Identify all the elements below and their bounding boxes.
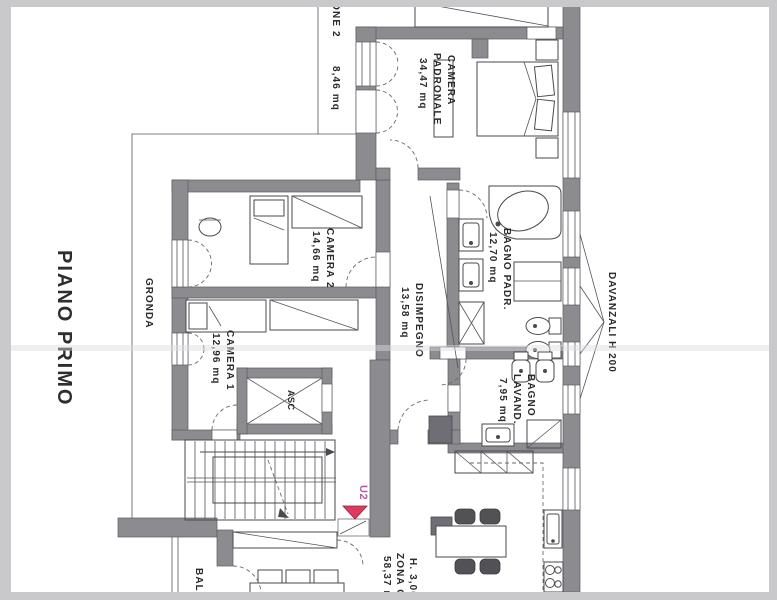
window-bedroom-east [563, 112, 580, 178]
stove [544, 562, 563, 592]
bidet [536, 352, 554, 382]
scan-edge-left [0, 0, 11, 600]
room-label-bagno-padronale: BAGNO PADR. [501, 228, 512, 310]
double-bed [477, 62, 558, 136]
chair [455, 509, 475, 524]
door-gap-camera1 [212, 430, 237, 440]
room-label-camera1: CAMERA 1 [224, 330, 235, 391]
pillow [534, 99, 554, 131]
scan-edge-top [0, 0, 777, 7]
window-kitchen-east [563, 468, 580, 510]
room-label-camera-padronale-1: CAMERA [445, 55, 456, 106]
room-area-bagno-padronale: 12,70 mq [487, 232, 498, 284]
nightstand [536, 138, 558, 158]
pillow [534, 65, 554, 97]
unit-marker-label: U2 [357, 485, 369, 500]
pillow [189, 303, 207, 329]
wall-camera-divider [172, 287, 378, 298]
single-bed [186, 300, 266, 332]
nightstand [536, 40, 558, 60]
room-label-lavanderia-1: BAGNO [525, 374, 536, 417]
wall-camera2-top [172, 180, 360, 192]
room-area-lavanderia: 7,95 mq [497, 378, 508, 423]
dining-table [436, 526, 506, 557]
kitchen-sink-unit [544, 510, 562, 548]
window-lavanderia-east [563, 385, 580, 414]
washbasin [482, 424, 514, 446]
room-area-camera1: 12,96 mq [210, 333, 221, 385]
scan-fold-artifact [11, 345, 769, 351]
wall-landing-east [370, 360, 390, 537]
floor-title: PIANO PRIMO [53, 250, 75, 406]
window-east-2 [563, 211, 580, 257]
room-height-zona-giorno: H. 3,00 [407, 558, 418, 598]
room-area-camera-padronale: 34,47 mq [417, 58, 428, 110]
wall-living-west [217, 530, 233, 566]
elevator-door [322, 384, 332, 412]
room-label-camera-padronale-2: PADRONALE [431, 53, 442, 126]
chair [455, 559, 475, 574]
door-gap-lavanderia [448, 385, 460, 412]
scanned-floor-plan: U2 PIANO PRIMO GRONDA BALCONE 2 8,46 mq … [0, 0, 777, 600]
bathtub [489, 184, 561, 239]
room-area-camera2: 14,66 mq [310, 231, 321, 283]
window-east-3 [563, 268, 580, 305]
room-area-disimpegno: 13,58 mq [399, 287, 410, 339]
room-label-camera2: CAMERA 2 [324, 228, 335, 289]
floor-plan-svg: U2 PIANO PRIMO GRONDA BALCONE 2 8,46 mq … [0, 0, 777, 600]
door-gap-camera2 [376, 252, 390, 287]
chair [480, 509, 500, 524]
door-gap-bagno [447, 190, 459, 218]
wall-stub [472, 39, 488, 58]
toilet [526, 318, 561, 335]
laundry-sink [429, 416, 452, 443]
scan-edge-bottom [0, 592, 777, 600]
room-label-lavanderia-2: LAVAND. [511, 374, 522, 425]
sink [459, 259, 483, 291]
unit-entrance-door [338, 519, 369, 536]
single-bed [250, 196, 288, 264]
elevator-label: ASC [286, 390, 296, 411]
window-top-wall [527, 27, 556, 39]
gronda-label: GRONDA [143, 278, 154, 328]
pillow [254, 200, 284, 216]
wall-bed-bottom-b [418, 168, 460, 180]
room-area-balcone2: 8,46 mq [330, 66, 341, 111]
scan-edge-right [769, 0, 777, 600]
davanzali-label: DAVANZALI H 200 [606, 272, 617, 373]
chair [480, 559, 500, 574]
exterior-wall-southwest [118, 518, 217, 537]
sink [459, 219, 483, 251]
wall-bed-bottom-a [376, 168, 390, 180]
